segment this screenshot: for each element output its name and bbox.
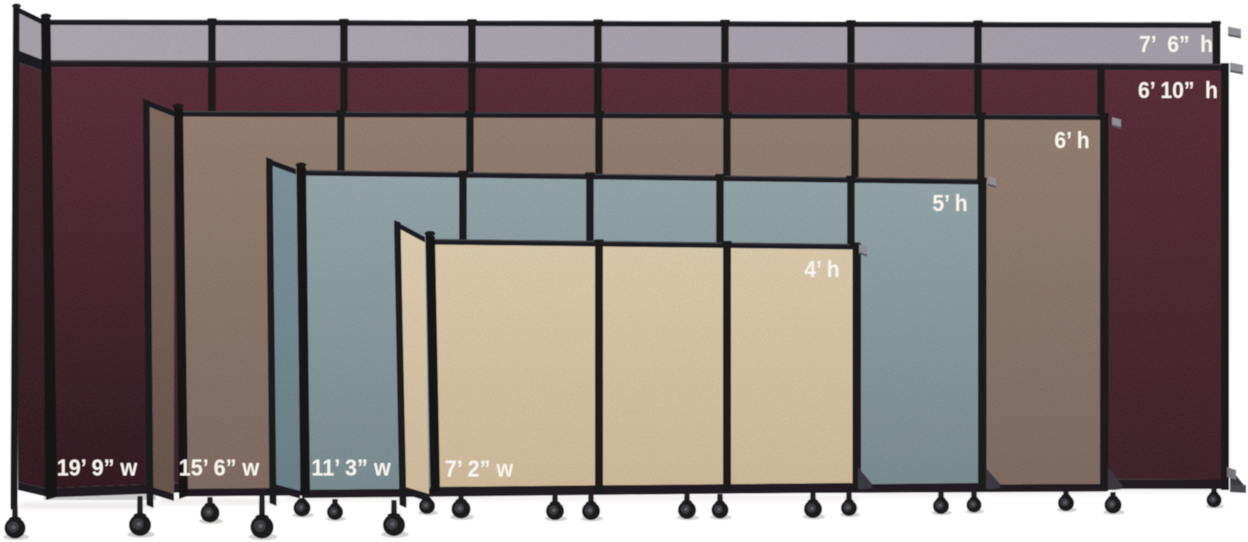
svg-text:4’ h: 4’ h <box>804 256 839 282</box>
svg-text:7’ 6” h: 7’ 6” h <box>1139 31 1213 57</box>
svg-text:15’ 6” w: 15’ 6” w <box>179 454 260 480</box>
svg-text:11’ 3” w: 11’ 3” w <box>311 454 391 480</box>
svg-text:5’ h: 5’ h <box>932 190 967 216</box>
svg-text:7’ 2” w: 7’ 2” w <box>445 455 514 481</box>
svg-text:6’ h: 6’ h <box>1054 127 1089 153</box>
svg-text:6’ 10” h: 6’ 10” h <box>1138 77 1218 103</box>
svg-text:19’ 9” w: 19’ 9” w <box>57 454 138 480</box>
